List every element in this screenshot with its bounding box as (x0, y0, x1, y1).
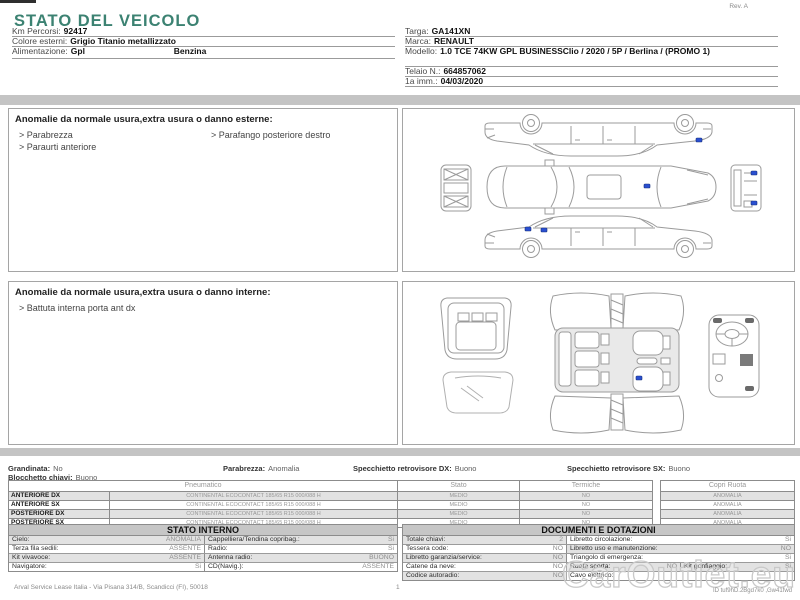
anomaly-item: > Parabrezza (19, 129, 96, 141)
vehicle-info-right: Targa:GA141XN Marca:RENAULT Modello:1.0 … (405, 27, 778, 87)
table-row: Totale chiavi:2 Libretto circolazione:Si (403, 536, 794, 544)
car-left-side-view (485, 115, 712, 157)
anomaly-item: > Paraurti anteriore (19, 141, 96, 153)
interior-car-diagram (403, 282, 794, 444)
field-fuel-label: Alimentazione: (12, 46, 68, 56)
damage-marker (636, 376, 642, 380)
anomaly-item: > Parafango posteriore destro (211, 129, 330, 141)
section-divider-bottom (0, 448, 800, 456)
damage-markers-interior (636, 376, 642, 380)
table-row: Terza fila sedili:ASSENTE Radio:Si (9, 544, 397, 553)
damage-marker (751, 201, 757, 205)
field-color-value: Grigio Titanio metallizzato (70, 36, 176, 46)
field-brand-label: Marca: (405, 36, 431, 46)
stato-interno-table: STATO INTERNO Cielo:ANOMALIA Cappelliera… (8, 524, 398, 572)
tires-table: Pneumatico Stato Termiche ANTERIORE DX C… (8, 480, 653, 528)
interior-anomalies-list-1: > Battuta interna porta ant dx (19, 302, 135, 314)
footer-document-id: ID tuf9hD.2Bgd7k0 ,Gw41fwd (713, 588, 792, 594)
footer-page-number: 1 (396, 584, 400, 591)
field-model-value: 1.0 TCE 74KW GPL BUSINESSClio / 2020 / 5… (440, 47, 710, 57)
exterior-anomalies-box: Anomalie da normale usura,extra usura o … (8, 108, 398, 272)
field-color-label: Colore esterni: (12, 36, 67, 46)
exterior-anomalies-list-1: > Parabrezza > Paraurti anteriore (19, 129, 96, 153)
documenti-title: DOCUMENTI E DOTAZIONI (403, 525, 794, 536)
vehicle-info-left: Km Percorsi:92417 Colore esterni:Grigio … (12, 27, 395, 59)
copri-ruota-table: Copri Ruota ANOMALIA ANOMALIA ANOMALIA A… (660, 480, 795, 528)
copri-ruota-value: ANOMALIA (661, 492, 794, 500)
table-row: Navigatore:Si CD(Navig.):ASSENTE (9, 562, 397, 571)
damage-marker (525, 227, 531, 231)
field-km-value: 92417 (64, 26, 88, 36)
tires-table-header: Pneumatico Stato Termiche (9, 481, 652, 491)
field-model: Modello:1.0 TCE 74KW GPL BUSINESSClio / … (405, 47, 778, 67)
damage-marker (696, 138, 702, 142)
check-parabrezza: Parabrezza:Anomalia (223, 458, 299, 476)
field-brand-value: RENAULT (434, 36, 474, 46)
tire-row-anteriore-sx: ANTERIORE SX CONTINENTAL ECOCONTACT 185/… (9, 500, 652, 509)
footer-company: Arval Service Lease Italia - Via Pisana … (14, 584, 208, 591)
exterior-car-diagram (403, 109, 794, 271)
field-first-registration-label: 1a imm.: (405, 76, 438, 86)
damage-marker (751, 171, 757, 175)
column-header-termiche: Termiche (519, 481, 652, 491)
interior-anomalies-title: Anomalie da normale usura,extra usura o … (15, 287, 271, 298)
check-mirror-dx: Specchietto retrovisore DX:Buono (353, 458, 476, 476)
dashboard-view (709, 315, 759, 397)
car-front-view (441, 165, 471, 211)
field-plate-label: Targa: (405, 26, 429, 36)
car-right-side-view (485, 216, 712, 258)
field-fuel: Alimentazione:GplBenzina (12, 47, 395, 59)
field-vin-value: 664857062 (443, 66, 486, 76)
exterior-anomalies-title: Anomalie da normale usura,extra usura o … (15, 114, 273, 125)
hood-view (443, 372, 513, 413)
field-km-label: Km Percorsi: (12, 26, 61, 36)
column-header-copri-ruota: Copri Ruota (661, 481, 794, 491)
damage-marker (644, 184, 650, 188)
exterior-anomalies-list-2: > Parafango posteriore destro (211, 129, 330, 141)
copri-ruota-value: ANOMALIA (661, 510, 794, 518)
anomaly-item: > Battuta interna porta ant dx (19, 302, 135, 314)
vehicle-condition-report: STATO DEL VEICOLO Rev. A Km Percorsi:924… (0, 0, 800, 600)
check-mirror-sx: Specchietto retrovisore SX:Buono (567, 458, 690, 476)
table-row: Tessera code:NO Libretto uso e manutenzi… (403, 544, 794, 553)
interior-diagram-box (402, 281, 795, 445)
car-top-view (487, 160, 716, 214)
stato-interno-title: STATO INTERNO (9, 525, 397, 536)
tire-row-posteriore-dx: POSTERIORE DX CONTINENTAL ECOCONTACT 185… (9, 509, 652, 518)
field-plate-value: GA141XN (432, 26, 471, 36)
column-header-stato: Stato (397, 481, 519, 491)
copri-ruota-value: ANOMALIA (661, 501, 794, 509)
field-vin-label: Telaio N.: (405, 66, 440, 76)
field-model-label: Modello: (405, 46, 437, 56)
interior-anomalies-box: Anomalie da normale usura,extra usura o … (8, 281, 398, 445)
column-header-pneumatico: Pneumatico (9, 481, 397, 491)
table-row: Kit vivavoce:ASSENTE Antenna radio:BUONO (9, 553, 397, 562)
field-fuel-value-1: Gpl (71, 47, 171, 57)
revision-label: Rev. A (729, 3, 748, 10)
exterior-diagram-box (402, 108, 795, 272)
damage-marker (541, 228, 547, 232)
field-fuel-value-2: Benzina (174, 46, 207, 56)
field-first-registration: 1a imm.:04/03/2020 (405, 77, 778, 87)
field-first-registration-value: 04/03/2020 (441, 76, 484, 86)
table-row: Cielo:ANOMALIA Cappelliera/Tendina copri… (9, 536, 397, 544)
section-divider-top (0, 95, 800, 105)
tire-row-anteriore-dx: ANTERIORE DX CONTINENTAL ECOCONTACT 185/… (9, 491, 652, 500)
scan-artifact (0, 0, 36, 3)
rear-seats-view (441, 298, 511, 359)
cabin-plan-view (550, 293, 683, 433)
